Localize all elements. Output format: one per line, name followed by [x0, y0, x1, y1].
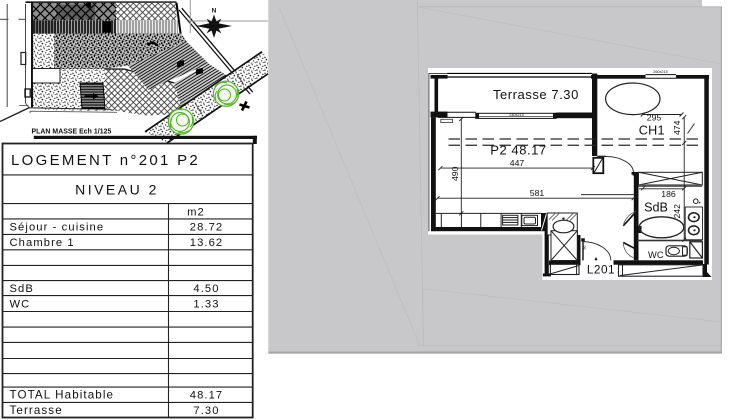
svg-text:242: 242 — [672, 204, 682, 219]
svg-text:NIVEAU 2: NIVEAU 2 — [75, 181, 159, 197]
svg-text:WC: WC — [10, 299, 31, 311]
svg-text:1.33: 1.33 — [193, 299, 219, 311]
svg-text:LOGEMENT n°201 P2: LOGEMENT n°201 P2 — [11, 152, 200, 169]
svg-text:PLAN MASSE Ech 1/125: PLAN MASSE Ech 1/125 — [32, 128, 112, 135]
svg-text:m2: m2 — [187, 207, 205, 219]
svg-text:28.72: 28.72 — [190, 222, 224, 234]
svg-text:7.30: 7.30 — [193, 405, 219, 417]
svg-text:240x215: 240x215 — [509, 113, 524, 117]
svg-text:SdB: SdB — [644, 201, 668, 215]
svg-text:Chambre 1: Chambre 1 — [10, 237, 75, 249]
svg-text:SdB: SdB — [10, 283, 34, 295]
svg-text:474: 474 — [672, 120, 682, 135]
svg-text:N: N — [212, 8, 217, 15]
svg-text:48.17: 48.17 — [190, 390, 224, 402]
svg-text:P2 48.17: P2 48.17 — [490, 143, 546, 158]
svg-text:L201: L201 — [587, 262, 615, 276]
svg-text:Terrasse 7.30: Terrasse 7.30 — [493, 87, 579, 102]
svg-text:90: 90 — [583, 246, 587, 250]
svg-text:295: 295 — [647, 112, 662, 122]
svg-text:TOTAL Habitable: TOTAL Habitable — [10, 389, 115, 402]
svg-text:490: 490 — [450, 166, 460, 181]
svg-text:186: 186 — [661, 189, 676, 199]
svg-text:260x215: 260x215 — [653, 70, 668, 74]
svg-text:447: 447 — [510, 158, 525, 168]
svg-text:CH1: CH1 — [639, 123, 665, 137]
svg-text:Séjour - cuisine: Séjour - cuisine — [10, 222, 105, 234]
svg-text:581: 581 — [530, 188, 545, 198]
svg-text:13.62: 13.62 — [190, 237, 224, 249]
svg-text:Terrasse: Terrasse — [10, 404, 63, 417]
svg-text:WC: WC — [648, 250, 664, 260]
svg-text:4.50: 4.50 — [193, 283, 219, 295]
